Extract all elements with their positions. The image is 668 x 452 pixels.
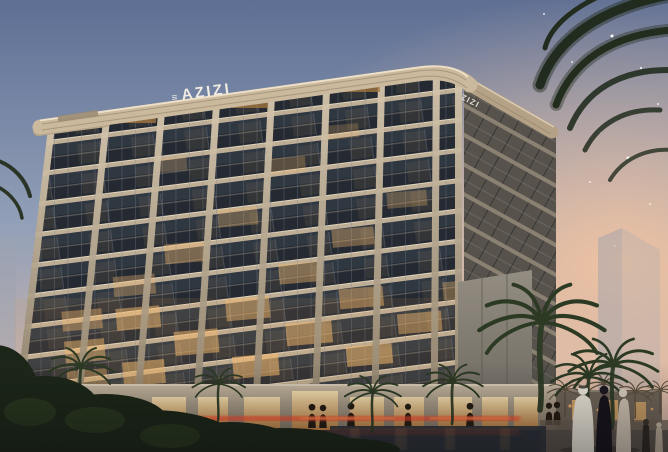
scene-canvas: ≡AZIZI [0,0,668,452]
bottom-vignette [0,0,668,452]
architectural-rendering: ≡AZIZI [0,0,668,452]
